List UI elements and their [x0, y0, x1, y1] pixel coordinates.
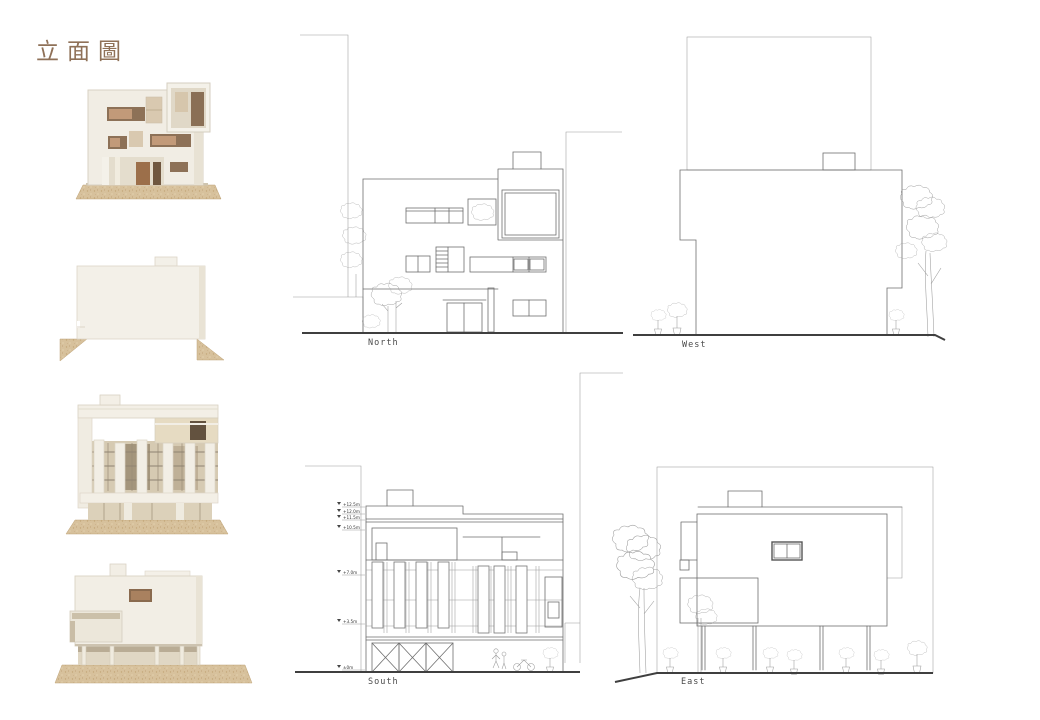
east-window: [772, 542, 802, 560]
elevation-drawing-south: +12.5m +12.0m +11.5m +10.5m +7.0m +3.5m …: [288, 356, 638, 694]
model-photo-north-image: [58, 70, 253, 220]
north-floor2-windows: [406, 247, 546, 272]
south-motorcycle-sketch: [514, 660, 535, 671]
model-photo-east: [50, 551, 260, 707]
elevation-drawing-west: West: [626, 16, 956, 352]
elevation-drawing-east: East: [610, 356, 1015, 694]
east-background-outline: [657, 467, 933, 673]
south-neighbor-buildings: [305, 373, 623, 672]
model-photo-north: [58, 70, 253, 220]
elevation-label-north: North: [368, 338, 399, 348]
north-porch-trees: [362, 277, 412, 332]
elevation-drawing-north: North: [293, 16, 638, 352]
east-background-box: [887, 507, 902, 578]
svg-text:+12.0m: +12.0m: [343, 509, 360, 514]
page-title: 立面圖: [36, 32, 129, 66]
presentation-board: 立面圖: [0, 0, 1040, 720]
east-potted-plants: [663, 595, 927, 675]
model-photo-west: [58, 226, 253, 370]
north-trees: [340, 203, 366, 297]
model-photo-east-image: [50, 551, 260, 707]
east-ground-line: [615, 673, 933, 682]
north-big-window: [502, 190, 559, 238]
svg-text:+12.5m: +12.5m: [343, 502, 360, 507]
elevation-label-west: West: [682, 340, 706, 350]
east-big-tree: [612, 525, 662, 673]
svg-text:+10.5m: +10.5m: [343, 525, 360, 530]
south-people-sketch: [492, 649, 506, 669]
model-photo-south-image: [58, 386, 253, 552]
north-floor3-windows: [406, 199, 496, 225]
north-balcony-tree: [471, 204, 493, 221]
north-entrance: [443, 288, 546, 332]
west-ground-line: [633, 335, 945, 340]
west-big-tree: [895, 185, 947, 337]
model-base: [76, 185, 221, 199]
svg-text:+3.5m: +3.5m: [343, 619, 357, 624]
west-background-building: [687, 37, 871, 170]
svg-text:±0m: ±0m: [343, 665, 353, 670]
south-potted-plant: [543, 648, 558, 673]
svg-text:+7.0m: +7.0m: [343, 570, 357, 575]
east-house-outline: [680, 491, 902, 626]
west-potted-plants: [651, 303, 904, 335]
svg-text:+11.5m: +11.5m: [343, 515, 360, 520]
elevation-label-south: South: [368, 677, 399, 687]
north-house-outline: [363, 152, 563, 332]
north-neighbor-buildings: [293, 35, 622, 332]
elevation-label-east: East: [681, 677, 705, 687]
west-house-outline: [680, 153, 902, 335]
south-louver-panels: [372, 562, 527, 633]
model-photo-west-image: [58, 226, 253, 370]
model-photo-south: [58, 386, 253, 552]
